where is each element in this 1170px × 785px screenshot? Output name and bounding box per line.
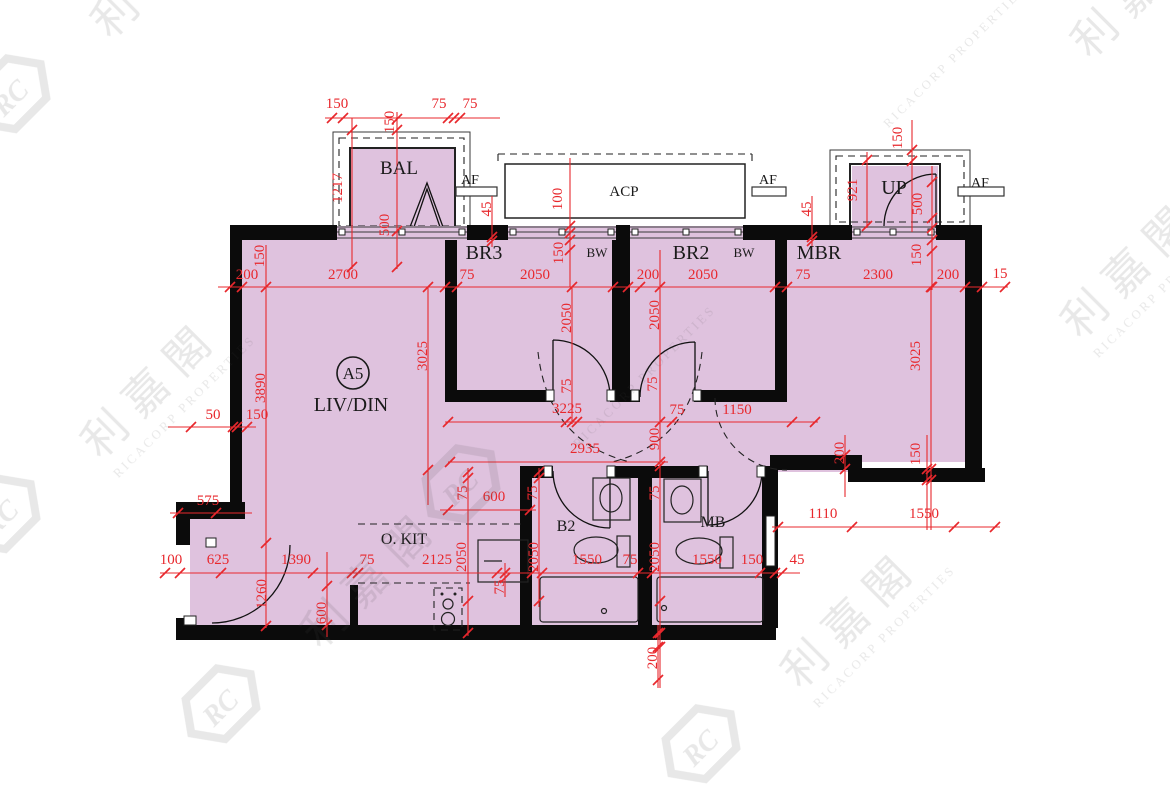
watermark-cjk-text: 利嘉閣: [1052, 189, 1170, 347]
dimension-label: 75: [623, 552, 638, 568]
door-jamb: [693, 390, 701, 401]
dimension-label: 150: [252, 245, 268, 268]
dimension-label: 2935: [570, 441, 600, 457]
dimension-label: 75: [432, 96, 447, 112]
dimension-label: 75: [463, 96, 478, 112]
svg-text:RC: RC: [0, 74, 36, 123]
dimension-label: 1150: [722, 402, 751, 418]
dimension-label: 2050: [688, 267, 718, 283]
door-jamb: [607, 390, 615, 401]
door-jamb: [757, 466, 765, 477]
ricacorp-logo-icon: RC: [172, 654, 271, 753]
wall-top-3: [616, 225, 630, 240]
watermark-cjk-text: 利嘉閣: [82, 0, 240, 47]
room-label: MB: [701, 514, 726, 531]
room-label: LIV/DIN: [314, 394, 388, 416]
dimension-label: 75: [455, 486, 471, 501]
floor-plan-canvas: 1507575150121750045100150150921500451502…: [0, 0, 1170, 785]
watermark-cjk-text: 利嘉閣: [72, 309, 230, 467]
dimension-label: 3025: [908, 341, 924, 371]
door-jamb: [184, 616, 196, 625]
dimension-label: 2050: [526, 542, 542, 572]
af-unit-left: [456, 187, 497, 196]
room-label: BR3: [466, 242, 503, 264]
mb-wall-inset: [766, 516, 775, 566]
wall-left-lower-1: [176, 519, 190, 545]
dimension-label: 100: [160, 552, 183, 568]
dimension-label: 600: [483, 489, 506, 505]
dimension-label: 75: [360, 552, 375, 568]
dimension-label: 200: [832, 442, 848, 465]
dimension-label: 75: [559, 379, 575, 394]
dimension-label: 75: [460, 267, 475, 283]
dimension-label: 75: [645, 377, 661, 392]
dimension-label: 45: [479, 202, 495, 217]
ricacorp-logo-icon: RC: [0, 44, 61, 143]
dimension-label: 15: [993, 266, 1008, 282]
dimension-label: 900: [647, 428, 663, 451]
dimension-label: 45: [790, 552, 805, 568]
dimension-label: 2700: [328, 267, 358, 283]
ricacorp-logo-icon: RC: [652, 694, 751, 785]
ricacorp-logo-icon: RC: [0, 464, 51, 563]
dimension-label: 1550: [909, 506, 939, 522]
dimension-label: 150: [246, 407, 269, 423]
dimension-label: 575: [197, 493, 220, 509]
dimension-label: 150: [908, 443, 924, 466]
door-jamb: [631, 390, 639, 401]
dimension-label: 3025: [415, 341, 431, 371]
dimension-label: 75: [492, 580, 508, 595]
unit-badge-label: A5: [343, 364, 364, 383]
room-label: O. KIT: [381, 531, 427, 548]
dimension-label: 600: [314, 602, 330, 625]
dimension-label: 921: [845, 179, 861, 202]
dimension-label: 3890: [253, 373, 269, 403]
watermark-tile: 利嘉閣RICACORP PROPERTIES: [1052, 174, 1170, 360]
wall-top-2: [467, 225, 508, 240]
watermark-tile: RC利嘉閣: [0, 0, 240, 153]
watermark-tile: RICACORP PROPERTIES: [881, 0, 1029, 131]
room-label: UP: [881, 177, 907, 199]
wall-br3-br2-divider: [612, 240, 630, 402]
balcony-window-strip: [337, 226, 467, 239]
room-label: BAL: [380, 158, 418, 179]
room-label: AF: [461, 173, 479, 188]
dimension-label: 2050: [520, 267, 550, 283]
door-jamb: [206, 538, 216, 547]
dimension-label: 500: [910, 193, 926, 216]
door-jamb: [544, 466, 552, 477]
dimension-label: 2050: [647, 542, 663, 572]
dimension-label: 200: [637, 267, 660, 283]
dimension-label: 2050: [559, 303, 575, 333]
watermark-cjk-text: 利嘉閣: [1062, 0, 1170, 67]
dimension-label: 2050: [454, 542, 470, 572]
dimension-label: 75: [647, 486, 663, 501]
wall-br2-bottom: [694, 390, 787, 402]
watermark-latin-text: RICACORP PROPERTIES: [1091, 213, 1170, 361]
watermark-latin-text: RICACORP PROPERTIES: [811, 563, 959, 711]
room-label: BW: [734, 245, 756, 260]
dimension-label: 3225: [552, 401, 582, 417]
floor-plan-page: 1507575150121750045100150150921500451502…: [0, 0, 1170, 785]
door-jamb: [607, 466, 615, 477]
wall-mbr-bottom-1: [770, 455, 862, 470]
dimension-label: 200: [937, 267, 960, 283]
room-label: MBR: [797, 242, 842, 264]
dimension-label: 1110: [809, 506, 838, 522]
dimension-label: 75: [525, 486, 541, 501]
dimension-label: 150: [326, 96, 349, 112]
svg-text:RC: RC: [196, 684, 245, 733]
wall-br3-bottom: [445, 390, 553, 402]
af-unit-mid: [752, 187, 786, 196]
dimension-label: 45: [799, 202, 815, 217]
dimension-label: 2050: [647, 300, 663, 330]
room-label: AF: [759, 173, 777, 188]
dimension-label: 1217: [330, 173, 346, 204]
dimension-label: 2125: [422, 552, 452, 568]
room-label: AF: [971, 176, 989, 191]
svg-text:RC: RC: [676, 724, 725, 773]
dimension-label: 150: [741, 552, 764, 568]
dimension-label: 150: [890, 127, 906, 150]
dimension-label: 200: [236, 267, 259, 283]
dimension-label: 625: [207, 552, 230, 568]
dimension-label: 75: [796, 267, 811, 283]
wall-mbr-bottom-2: [848, 468, 985, 482]
wall-kitchen-stub: [350, 585, 358, 633]
br2-bay-window: [630, 226, 743, 239]
wall-right: [965, 225, 982, 475]
room-label: BR2: [673, 242, 710, 264]
room-label: B2: [557, 518, 576, 535]
dimension-label: 75: [670, 402, 685, 418]
watermark-latin-text: RICACORP PROPERTIES: [881, 0, 1029, 131]
watermark-tile: 利嘉閣: [1062, 0, 1170, 67]
dimension-label: 1260: [254, 579, 270, 609]
door-jamb: [546, 390, 554, 401]
svg-text:RC: RC: [0, 494, 26, 543]
dimension-label: 150: [382, 111, 398, 134]
dimension-label: 1550: [692, 552, 722, 568]
door-jamb: [699, 466, 707, 477]
dimension-label: 200: [645, 647, 661, 670]
wall-top-4: [743, 225, 852, 240]
wall-br2-mbr-divider: [775, 240, 787, 402]
room-label: ACP: [609, 184, 638, 200]
dimension-label: 1550: [572, 552, 602, 568]
dimension-label: 100: [550, 188, 566, 211]
main-unit-floor: [190, 232, 965, 628]
wall-br3-left: [445, 240, 457, 402]
dimension-label: 150: [909, 244, 925, 267]
dimension-label: 2300: [863, 267, 893, 283]
br3-bay-window: [508, 226, 616, 239]
dimension-label: 150: [551, 242, 567, 265]
wall-top-1: [230, 225, 337, 240]
dimension-label: 50: [206, 407, 221, 423]
room-label: BW: [587, 245, 609, 260]
dimension-label: 500: [377, 214, 393, 237]
dimension-label: 1390: [281, 552, 311, 568]
